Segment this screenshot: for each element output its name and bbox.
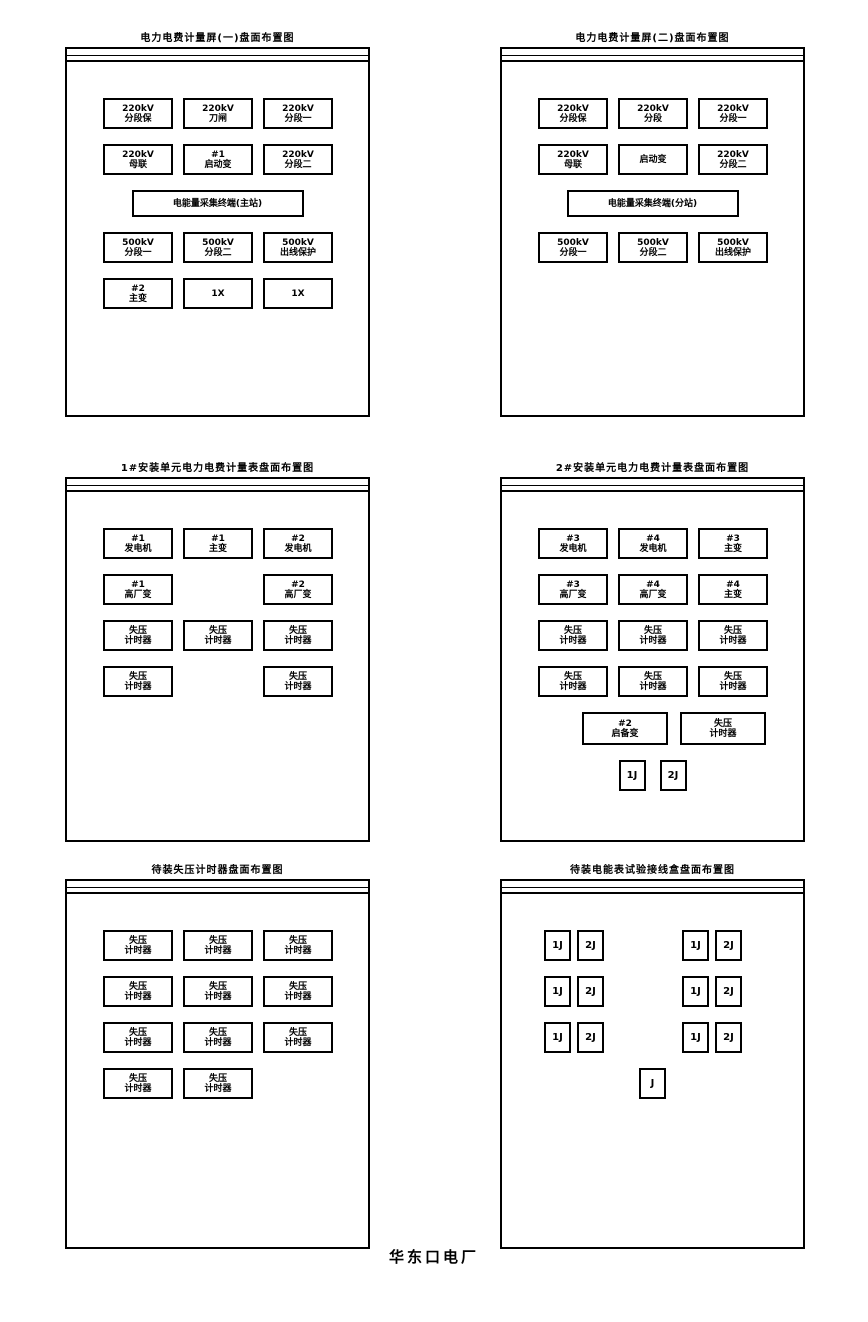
meter-box-label: 220kV xyxy=(282,104,314,114)
panel-row: #1发电机#1主变#2发电机 xyxy=(67,528,368,559)
meter-box: 220kV刀闸 xyxy=(183,98,253,129)
meter-box: 2J xyxy=(660,760,687,791)
meter-box-label: 刀闸 xyxy=(209,114,227,124)
meter-box-label: 失压 xyxy=(644,672,662,682)
meter-box-label: 分段一 xyxy=(559,248,586,258)
panel-spare-timers: 待装失压计时器盘面布置图 失压计时器失压计时器失压计时器失压计时器失压计时器失压… xyxy=(65,864,370,1249)
meter-box-label: 计时器 xyxy=(719,682,746,692)
meter-box-label: 计时器 xyxy=(559,636,586,646)
meter-box-label: 500kV xyxy=(202,238,234,248)
panel-header-strip xyxy=(502,479,803,486)
panel-unit2-metering: 2#安装单元电力电费计量表盘面布置图 #3发电机#4发电机#3主变#3高厂变#4… xyxy=(500,462,805,842)
meter-box-label: 计时器 xyxy=(204,1084,231,1094)
panel-row: #3发电机#4发电机#3主变 xyxy=(502,528,803,559)
meter-box-label: 高厂变 xyxy=(284,590,311,600)
meter-box: 失压计时器 xyxy=(183,1068,253,1099)
panel-row: #2主变1X1X xyxy=(67,278,368,309)
meter-box: 失压计时器 xyxy=(538,666,608,697)
meter-box: 1J xyxy=(682,930,709,961)
meter-box-label: 2J xyxy=(585,987,596,997)
meter-box: J xyxy=(639,1068,666,1099)
meter-box-label: 1J xyxy=(552,1033,563,1043)
meter-box: #1高厂变 xyxy=(103,574,173,605)
panel-row: #1高厂变#2高厂变 xyxy=(67,574,368,605)
panel-row: 失压计时器失压计时器 xyxy=(67,1068,368,1099)
meter-box-label: 2J xyxy=(585,941,596,951)
meter-box-label: 失压 xyxy=(129,672,147,682)
meter-box: 失压计时器 xyxy=(103,930,173,961)
panel-row: 失压计时器失压计时器 xyxy=(67,666,368,697)
meter-box: 电能量采集终端(分站) xyxy=(567,190,739,217)
meter-box-label: 2J xyxy=(723,987,734,997)
meter-box-label: 220kV xyxy=(282,150,314,160)
meter-box: 失压计时器 xyxy=(103,620,173,651)
meter-box: #4主变 xyxy=(698,574,768,605)
meter-box-label: 2J xyxy=(723,941,734,951)
meter-box: 失压计时器 xyxy=(618,666,688,697)
meter-box-label: 分段一 xyxy=(719,114,746,124)
meter-box-label: 启动变 xyxy=(204,160,231,170)
meter-box-label: 计时器 xyxy=(559,682,586,692)
meter-box: 失压计时器 xyxy=(183,930,253,961)
meter-box-label: 主变 xyxy=(209,544,227,554)
meter-box-label: 1J xyxy=(627,771,638,781)
panel-row: 失压计时器失压计时器失压计时器 xyxy=(67,930,368,961)
panel-spare-junction-boxes: 待装电能表试验接线盒盘面布置图 1J2J1J2J1J2J1J2J1J2J1J2J… xyxy=(500,864,805,1249)
meter-box-label: 母联 xyxy=(564,160,582,170)
meter-box-label: 计时器 xyxy=(124,682,151,692)
panel-row: #2启备变失压计时器 xyxy=(502,712,803,745)
meter-box: 500kV分段一 xyxy=(538,232,608,263)
meter-box-label: #1 xyxy=(211,150,225,160)
meter-box-label: 计时器 xyxy=(284,636,311,646)
meter-box: #2高厂变 xyxy=(263,574,333,605)
meter-box: #1启动变 xyxy=(183,144,253,175)
panel-outline: 220kV分段保220kV刀闸220kV分段一220kV母联#1启动变220kV… xyxy=(65,47,370,417)
meter-box-label: 分段保 xyxy=(559,114,586,124)
meter-box-label: #2 xyxy=(131,284,145,294)
panel-row: 220kV母联#1启动变220kV分段二 xyxy=(67,144,368,175)
meter-box-label: 主变 xyxy=(724,590,742,600)
meter-box-label: 1X xyxy=(211,289,224,299)
meter-box-label: 分段保 xyxy=(124,114,151,124)
panel-title: 待装失压计时器盘面布置图 xyxy=(65,864,370,879)
meter-box-label: 计时器 xyxy=(709,729,736,739)
panel-row: 220kV分段保220kV分段220kV分段一 xyxy=(502,98,803,129)
panel-unit1-metering: 1#安装单元电力电费计量表盘面布置图 #1发电机#1主变#2发电机#1高厂变#2… xyxy=(65,462,370,842)
meter-box-label: 计时器 xyxy=(124,1038,151,1048)
meter-box-label: 失压 xyxy=(129,626,147,636)
meter-box-label: #4 xyxy=(726,580,740,590)
meter-box-label: 500kV xyxy=(122,238,154,248)
meter-box-label: 220kV xyxy=(557,104,589,114)
meter-box-label: 220kV xyxy=(122,104,154,114)
meter-box: #3主变 xyxy=(698,528,768,559)
meter-box-label: 分段二 xyxy=(204,248,231,258)
meter-box: 失压计时器 xyxy=(263,976,333,1007)
meter-box-label: 母联 xyxy=(129,160,147,170)
meter-box-label: J xyxy=(651,1079,655,1089)
meter-box-label: 高厂变 xyxy=(559,590,586,600)
meter-box-label: #3 xyxy=(566,580,580,590)
panel-row: 失压计时器失压计时器失压计时器 xyxy=(67,620,368,651)
meter-box-label: 220kV xyxy=(202,104,234,114)
meter-box-label: 发电机 xyxy=(559,544,586,554)
meter-box: 220kV分段一 xyxy=(698,98,768,129)
panel-outline: 220kV分段保220kV分段220kV分段一220kV母联启动变220kV分段… xyxy=(500,47,805,417)
meter-box-label: 失压 xyxy=(289,626,307,636)
meter-box-label: 分段二 xyxy=(284,160,311,170)
meter-box: 失压计时器 xyxy=(183,976,253,1007)
panel-title: 1#安装单元电力电费计量表盘面布置图 xyxy=(65,462,370,477)
meter-box-label: 220kV xyxy=(637,104,669,114)
meter-box-label: 失压 xyxy=(129,1074,147,1084)
meter-box-label: 分段二 xyxy=(639,248,666,258)
meter-box: 失压计时器 xyxy=(103,976,173,1007)
meter-box-label: 分段一 xyxy=(124,248,151,258)
meter-box-label: #4 xyxy=(646,534,660,544)
meter-box-label: 启备变 xyxy=(611,729,638,739)
meter-box: 220kV分段保 xyxy=(103,98,173,129)
panel-row: 1J2J1J2J xyxy=(502,1022,803,1053)
panel-header-strip xyxy=(502,881,803,888)
meter-box-label: #2 xyxy=(291,534,305,544)
meter-box-label: 220kV xyxy=(122,150,154,160)
meter-box-label: 分段 xyxy=(644,114,662,124)
meter-box: 电能量采集终端(主站) xyxy=(132,190,304,217)
meter-box-label: 出线保护 xyxy=(280,248,316,258)
panel-metering-screen-2: 电力电费计量屏(二)盘面布置图 220kV分段保220kV分段220kV分段一2… xyxy=(500,32,805,417)
factory-name-label: 华东口电厂 xyxy=(389,1246,479,1267)
meter-box-label: 1J xyxy=(690,1033,701,1043)
panel-row: 1J2J1J2J xyxy=(502,976,803,1007)
meter-box-label: 计时器 xyxy=(284,1038,311,1048)
panel-outline: #1发电机#1主变#2发电机#1高厂变#2高厂变失压计时器失压计时器失压计时器失… xyxy=(65,477,370,842)
meter-box-label: 计时器 xyxy=(204,946,231,956)
meter-box-label: 电能量采集终端(分站) xyxy=(608,199,697,209)
meter-box-label: 计时器 xyxy=(124,946,151,956)
panel-row: 失压计时器失压计时器失压计时器 xyxy=(67,1022,368,1053)
panel-row: 电能量采集终端(主站) xyxy=(67,190,368,217)
meter-box-label: 发电机 xyxy=(639,544,666,554)
meter-box-label: 计时器 xyxy=(719,636,746,646)
panel-row: 失压计时器失压计时器失压计时器 xyxy=(502,620,803,651)
meter-box: 失压计时器 xyxy=(263,620,333,651)
meter-box-label: 失压 xyxy=(129,1028,147,1038)
meter-box: 220kV分段一 xyxy=(263,98,333,129)
meter-box: 1J xyxy=(544,1022,571,1053)
meter-box-label: 失压 xyxy=(724,672,742,682)
panel-row: 1J2J1J2J xyxy=(502,930,803,961)
meter-box-label: 失压 xyxy=(564,672,582,682)
panel-title: 电力电费计量屏(一)盘面布置图 xyxy=(65,32,370,47)
meter-box-label: #3 xyxy=(726,534,740,544)
meter-box-label: 1X xyxy=(291,289,304,299)
meter-box-label: 2J xyxy=(723,1033,734,1043)
meter-box: 启动变 xyxy=(618,144,688,175)
meter-box-label: 计时器 xyxy=(284,992,311,1002)
meter-box: 失压计时器 xyxy=(263,1022,333,1053)
meter-box: #1发电机 xyxy=(103,528,173,559)
meter-box-label: 计时器 xyxy=(284,682,311,692)
meter-box: 失压计时器 xyxy=(183,1022,253,1053)
meter-box-label: 失压 xyxy=(209,936,227,946)
meter-box: 2J xyxy=(715,930,742,961)
panel-row: 1J2J xyxy=(502,760,803,791)
meter-box: 220kV母联 xyxy=(103,144,173,175)
meter-box-label: 2J xyxy=(668,771,679,781)
meter-box-label: 500kV xyxy=(557,238,589,248)
meter-box-label: 1J xyxy=(552,941,563,951)
meter-box-label: 计时器 xyxy=(639,636,666,646)
meter-box-label: 计时器 xyxy=(204,992,231,1002)
panel-row: 电能量采集终端(分站) xyxy=(502,190,803,217)
panel-body: 1J2J1J2J1J2J1J2J1J2J1J2JJ xyxy=(502,894,803,1099)
meter-box-label: 220kV xyxy=(717,104,749,114)
meter-box: 1J xyxy=(544,930,571,961)
meter-box-label: 1J xyxy=(552,987,563,997)
panel-header-strip xyxy=(67,49,368,56)
meter-box-label: 失压 xyxy=(289,982,307,992)
meter-box: 220kV母联 xyxy=(538,144,608,175)
meter-box-label: 高厂变 xyxy=(639,590,666,600)
panel-body: #1发电机#1主变#2发电机#1高厂变#2高厂变失压计时器失压计时器失压计时器失… xyxy=(67,492,368,697)
panel-body: 220kV分段保220kV分段220kV分段一220kV母联启动变220kV分段… xyxy=(502,62,803,263)
meter-box-label: 失压 xyxy=(289,1028,307,1038)
panel-row: 失压计时器失压计时器失压计时器 xyxy=(67,976,368,1007)
panel-row: 失压计时器失压计时器失压计时器 xyxy=(502,666,803,697)
meter-box: 失压计时器 xyxy=(538,620,608,651)
meter-box: 500kV分段二 xyxy=(183,232,253,263)
meter-box-label: 启动变 xyxy=(639,155,666,165)
meter-box-label: 220kV xyxy=(717,150,749,160)
meter-box: 失压计时器 xyxy=(263,930,333,961)
meter-box-label: #2 xyxy=(291,580,305,590)
meter-box-label: 计时器 xyxy=(124,992,151,1002)
meter-box: #4发电机 xyxy=(618,528,688,559)
meter-box-label: 计时器 xyxy=(204,1038,231,1048)
meter-box: 220kV分段二 xyxy=(698,144,768,175)
meter-box: 2J xyxy=(577,1022,604,1053)
meter-box: 失压计时器 xyxy=(618,620,688,651)
meter-box-label: 1J xyxy=(690,987,701,997)
meter-box: 500kV出线保护 xyxy=(263,232,333,263)
meter-box-label: 失压 xyxy=(209,1074,227,1084)
panel-metering-screen-1: 电力电费计量屏(一)盘面布置图 220kV分段保220kV刀闸220kV分段一2… xyxy=(65,32,370,417)
meter-box-label: #3 xyxy=(566,534,580,544)
meter-box-label: 发电机 xyxy=(284,544,311,554)
meter-box-label: #1 xyxy=(211,534,225,544)
meter-box: #4高厂变 xyxy=(618,574,688,605)
panel-body: 220kV分段保220kV刀闸220kV分段一220kV母联#1启动变220kV… xyxy=(67,62,368,309)
meter-box: 失压计时器 xyxy=(263,666,333,697)
meter-box-label: 失压 xyxy=(644,626,662,636)
panel-outline: 1J2J1J2J1J2J1J2J1J2J1J2JJ xyxy=(500,879,805,1249)
meter-box-label: 计时器 xyxy=(639,682,666,692)
meter-box: 失压计时器 xyxy=(103,1022,173,1053)
meter-box-label: 电能量采集终端(主站) xyxy=(173,199,262,209)
meter-box: 失压计时器 xyxy=(103,666,173,697)
panel-body: 失压计时器失压计时器失压计时器失压计时器失压计时器失压计时器失压计时器失压计时器… xyxy=(67,894,368,1099)
panel-body: #3发电机#4发电机#3主变#3高厂变#4高厂变#4主变失压计时器失压计时器失压… xyxy=(502,492,803,791)
meter-box-label: 失压 xyxy=(129,936,147,946)
meter-box: 2J xyxy=(715,1022,742,1053)
meter-box: 2J xyxy=(577,976,604,1007)
meter-box: 220kV分段保 xyxy=(538,98,608,129)
meter-box: 1J xyxy=(682,976,709,1007)
meter-box-label: 500kV xyxy=(282,238,314,248)
panel-header-strip xyxy=(67,881,368,888)
meter-box: 失压计时器 xyxy=(183,620,253,651)
meter-box-label: 分段二 xyxy=(719,160,746,170)
meter-box-label: 主变 xyxy=(724,544,742,554)
panel-row: 220kV分段保220kV刀闸220kV分段一 xyxy=(67,98,368,129)
meter-box-label: 失压 xyxy=(289,672,307,682)
meter-box-label: #1 xyxy=(131,580,145,590)
meter-box-label: 2J xyxy=(585,1033,596,1043)
meter-box: 220kV分段 xyxy=(618,98,688,129)
meter-box: #3发电机 xyxy=(538,528,608,559)
meter-box-label: 计时器 xyxy=(284,946,311,956)
meter-box: 500kV分段二 xyxy=(618,232,688,263)
meter-box: 500kV分段一 xyxy=(103,232,173,263)
meter-box-label: #2 xyxy=(618,719,632,729)
meter-box-label: 失压 xyxy=(289,936,307,946)
meter-box: #2主变 xyxy=(103,278,173,309)
meter-box-label: 计时器 xyxy=(204,636,231,646)
meter-box: 失压计时器 xyxy=(698,666,768,697)
panel-row: 500kV分段一500kV分段二500kV出线保护 xyxy=(67,232,368,263)
panel-title: 电力电费计量屏(二)盘面布置图 xyxy=(500,32,805,47)
meter-box-label: 失压 xyxy=(564,626,582,636)
meter-box-label: 分段一 xyxy=(284,114,311,124)
meter-box: #1主变 xyxy=(183,528,253,559)
meter-box-label: 500kV xyxy=(717,238,749,248)
meter-box: 1J xyxy=(619,760,646,791)
panel-row: J xyxy=(502,1068,803,1099)
panel-row: 220kV母联启动变220kV分段二 xyxy=(502,144,803,175)
meter-box: #2发电机 xyxy=(263,528,333,559)
meter-box-label: 出线保护 xyxy=(715,248,751,258)
meter-box-label: 计时器 xyxy=(124,1084,151,1094)
meter-box: 2J xyxy=(577,930,604,961)
meter-box: 失压计时器 xyxy=(680,712,766,745)
meter-box: 1J xyxy=(544,976,571,1007)
meter-box: 220kV分段二 xyxy=(263,144,333,175)
panel-outline: #3发电机#4发电机#3主变#3高厂变#4高厂变#4主变失压计时器失压计时器失压… xyxy=(500,477,805,842)
meter-box-label: 500kV xyxy=(637,238,669,248)
meter-box-label: #1 xyxy=(131,534,145,544)
meter-box: 失压计时器 xyxy=(698,620,768,651)
panel-row: 500kV分段一500kV分段二500kV出线保护 xyxy=(502,232,803,263)
panel-title: 待装电能表试验接线盒盘面布置图 xyxy=(500,864,805,879)
meter-box-label: 高厂变 xyxy=(124,590,151,600)
panel-row: #3高厂变#4高厂变#4主变 xyxy=(502,574,803,605)
panel-header-strip xyxy=(502,49,803,56)
panel-outline: 失压计时器失压计时器失压计时器失压计时器失压计时器失压计时器失压计时器失压计时器… xyxy=(65,879,370,1249)
meter-box-label: 失压 xyxy=(209,982,227,992)
meter-box: #3高厂变 xyxy=(538,574,608,605)
panel-header-strip xyxy=(67,479,368,486)
meter-box-label: 计时器 xyxy=(124,636,151,646)
meter-box-label: 失压 xyxy=(209,626,227,636)
panel-title: 2#安装单元电力电费计量表盘面布置图 xyxy=(500,462,805,477)
meter-box-label: 1J xyxy=(690,941,701,951)
meter-box-label: 失压 xyxy=(129,982,147,992)
meter-box-label: 主变 xyxy=(129,294,147,304)
meter-box-label: 220kV xyxy=(557,150,589,160)
meter-box-label: 发电机 xyxy=(124,544,151,554)
meter-box: 失压计时器 xyxy=(103,1068,173,1099)
meter-box: 500kV出线保护 xyxy=(698,232,768,263)
meter-box: 2J xyxy=(715,976,742,1007)
meter-box-label: 失压 xyxy=(209,1028,227,1038)
meter-box: 1X xyxy=(183,278,253,309)
meter-box-label: 失压 xyxy=(724,626,742,636)
meter-box: #2启备变 xyxy=(582,712,668,745)
meter-box-label: #4 xyxy=(646,580,660,590)
meter-box: 1X xyxy=(263,278,333,309)
meter-box: 1J xyxy=(682,1022,709,1053)
meter-box-label: 失压 xyxy=(714,719,732,729)
